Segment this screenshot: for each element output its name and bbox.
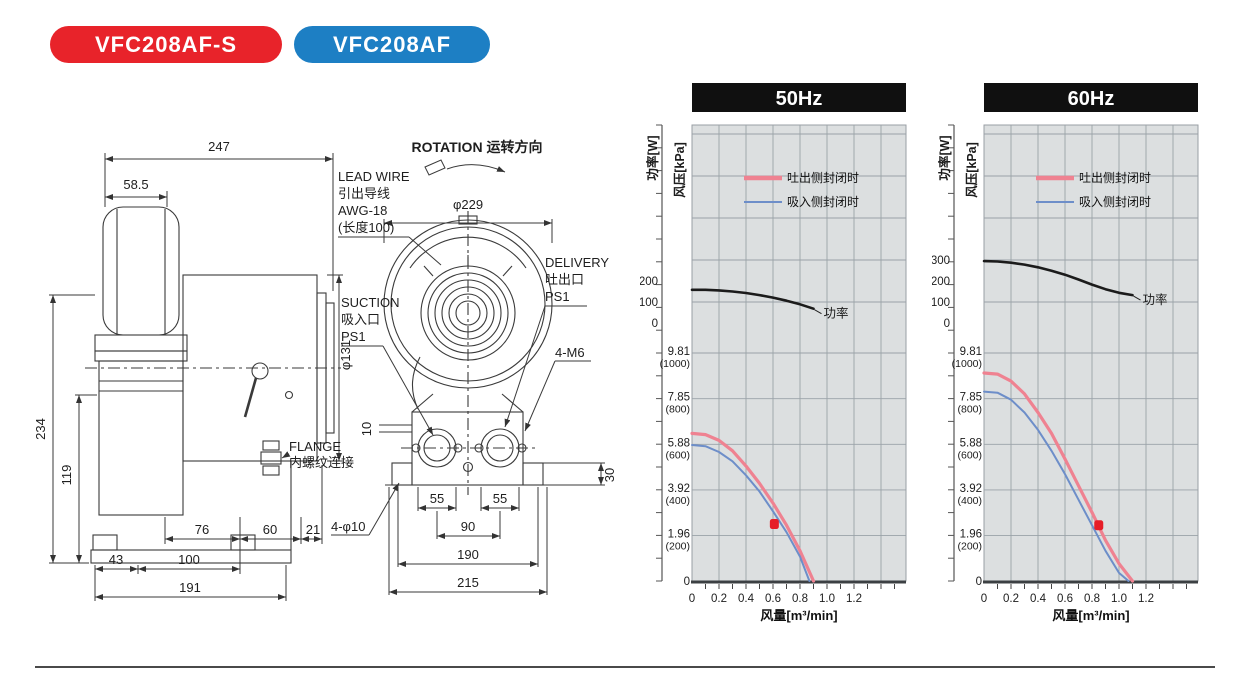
pressure-tick-mmaq: (1000) [952, 358, 982, 370]
performance-chart-60hz: 60Hz功率[W]风压[kPa]30020010009.81(1000)7.85… [932, 78, 1242, 623]
suction-label: SUCTION [341, 295, 400, 310]
x-tick-label: 0.4 [738, 593, 755, 605]
model-badge-vfc208af: VFC208AF [294, 26, 490, 63]
front-view-dimensions: ROTATION 运转方向 φ229 LEAD WIRE 引出导线 AWG-18… [331, 139, 617, 595]
section-divider [35, 666, 1215, 668]
pressure-tick-kpa: 5.88 [960, 437, 982, 449]
flange-label: FLANGE [289, 439, 341, 454]
front-view-drawing [384, 211, 552, 495]
power-tick-label: 100 [932, 297, 950, 309]
pressure-tick-kpa: 5.88 [668, 437, 690, 449]
legend-label: 吐出侧封闭时 [1079, 171, 1151, 185]
power-axis-label: 功率[W] [937, 135, 952, 180]
pressure-tick-mmaq: (200) [957, 540, 982, 552]
pressure-zero-label: 0 [684, 576, 690, 588]
power-curve-label: 功率 [1143, 292, 1168, 307]
power-tick-label: 200 [640, 276, 658, 288]
dim-190: 190 [457, 547, 479, 562]
pressure-tick-kpa: 1.96 [960, 528, 982, 540]
rated-point-marker [770, 519, 779, 529]
pressure-tick-mmaq: (800) [665, 404, 690, 416]
dim-10: 10 [359, 422, 374, 436]
suction-label-cn: 吸入口 [341, 312, 380, 327]
power-tick-label: 0 [652, 318, 658, 330]
side-view-drawing [85, 207, 341, 563]
side-view-dimensions: 247 58.5 234 119 φ131 FLANGE 内螺纹连接 76 60… [35, 139, 354, 601]
model-badge-label: VFC208AF [333, 32, 451, 58]
lead-wire-label: LEAD WIRE [338, 169, 410, 184]
chart-title: 50Hz [776, 88, 823, 110]
x-tick-label: 1.0 [1111, 593, 1127, 605]
dim-55-right: 55 [493, 491, 507, 506]
dim-119: 119 [59, 465, 74, 486]
power-tick-label: 200 [932, 276, 950, 288]
dim-phi131: φ131 [338, 340, 353, 370]
dim-58.5: 58.5 [123, 177, 148, 192]
x-tick-label: 0 [981, 593, 987, 605]
x-tick-label: 0.8 [1084, 593, 1100, 605]
chart-title: 60Hz [1068, 88, 1115, 110]
dim-247: 247 [208, 139, 230, 154]
x-tick-label: 0.6 [765, 593, 781, 605]
model-badge-label: VFC208AF-S [95, 32, 237, 58]
x-tick-label: 1.2 [1138, 593, 1154, 605]
legend-label: 吸入侧封闭时 [1079, 195, 1151, 209]
rotation-label: ROTATION 运转方向 [412, 139, 543, 155]
bolt-spec-label: 4-M6 [555, 345, 585, 360]
legend-label: 吸入侧封闭时 [787, 195, 859, 209]
power-curve-label: 功率 [824, 306, 849, 321]
pressure-tick-mmaq: (1000) [660, 358, 690, 370]
pressure-tick-kpa: 9.81 [668, 346, 690, 358]
power-tick-label: 0 [944, 318, 950, 330]
dim-43: 43 [109, 552, 123, 567]
pressure-tick-mmaq: (200) [665, 540, 690, 552]
x-tick-label: 0 [689, 593, 695, 605]
dim-60: 60 [263, 522, 277, 537]
x-tick-label: 0.2 [1003, 593, 1019, 605]
delivery-label: DELIVERY [545, 255, 609, 270]
dim-21: 21 [306, 522, 320, 537]
pressure-tick-mmaq: (800) [957, 404, 982, 416]
catalog-page: { "badges": [ { "label": "VFC208AF-S", "… [0, 0, 1250, 692]
performance-chart-50hz: 50Hz功率[W]风压[kPa]20010009.81(1000)7.85(80… [640, 78, 950, 623]
x-tick-label: 0.2 [711, 593, 727, 605]
x-tick-label: 0.6 [1057, 593, 1073, 605]
dimension-drawings: 247 58.5 234 119 φ131 FLANGE 内螺纹连接 76 60… [35, 95, 650, 645]
pressure-tick-mmaq: (400) [665, 495, 690, 507]
lead-wire-length: (长度100) [338, 220, 394, 235]
power-axis-label: 功率[W] [645, 135, 660, 180]
dim-phi229: φ229 [453, 197, 483, 212]
pressure-tick-kpa: 9.81 [960, 346, 982, 358]
power-tick-label: 300 [932, 255, 950, 267]
pressure-tick-mmaq: (400) [957, 495, 982, 507]
pressure-tick-kpa: 7.85 [960, 392, 982, 404]
pressure-tick-kpa: 3.92 [960, 483, 982, 495]
x-tick-label: 1.2 [846, 593, 862, 605]
dim-90: 90 [461, 519, 475, 534]
rated-point-marker [1094, 520, 1103, 530]
dim-215: 215 [457, 575, 479, 590]
dim-191: 191 [179, 580, 201, 595]
x-tick-label: 1.0 [819, 593, 835, 605]
x-axis-label: 风量[m³/min] [760, 608, 837, 623]
power-tick-label: 100 [640, 297, 658, 309]
pressure-tick-kpa: 7.85 [668, 392, 690, 404]
pressure-zero-label: 0 [976, 576, 982, 588]
x-axis-label: 风量[m³/min] [1052, 608, 1129, 623]
pressure-tick-kpa: 1.96 [668, 528, 690, 540]
x-tick-label: 0.8 [792, 593, 808, 605]
suction-port-size: PS1 [341, 329, 366, 344]
dim-76: 76 [195, 522, 209, 537]
x-tick-label: 0.4 [1030, 593, 1047, 605]
dim-234: 234 [35, 418, 48, 440]
lead-wire-awg: AWG-18 [338, 203, 387, 218]
lead-wire-label-cn: 引出导线 [338, 186, 390, 201]
delivery-label-cn: 吐出口 [545, 272, 584, 287]
delivery-port-size: PS1 [545, 289, 570, 304]
pressure-tick-mmaq: (600) [957, 449, 982, 461]
hole-spec-label: 4-φ10 [331, 519, 365, 534]
pressure-tick-mmaq: (600) [665, 449, 690, 461]
pressure-axis-label: 风压[kPa] [673, 142, 687, 198]
pressure-axis-label: 风压[kPa] [965, 142, 979, 198]
dim-30: 30 [602, 468, 617, 482]
dim-100: 100 [178, 552, 200, 567]
model-badge-vfc208af-s: VFC208AF-S [50, 26, 282, 63]
legend-label: 吐出侧封闭时 [787, 171, 859, 185]
pressure-tick-kpa: 3.92 [668, 483, 690, 495]
dim-55-left: 55 [430, 491, 444, 506]
